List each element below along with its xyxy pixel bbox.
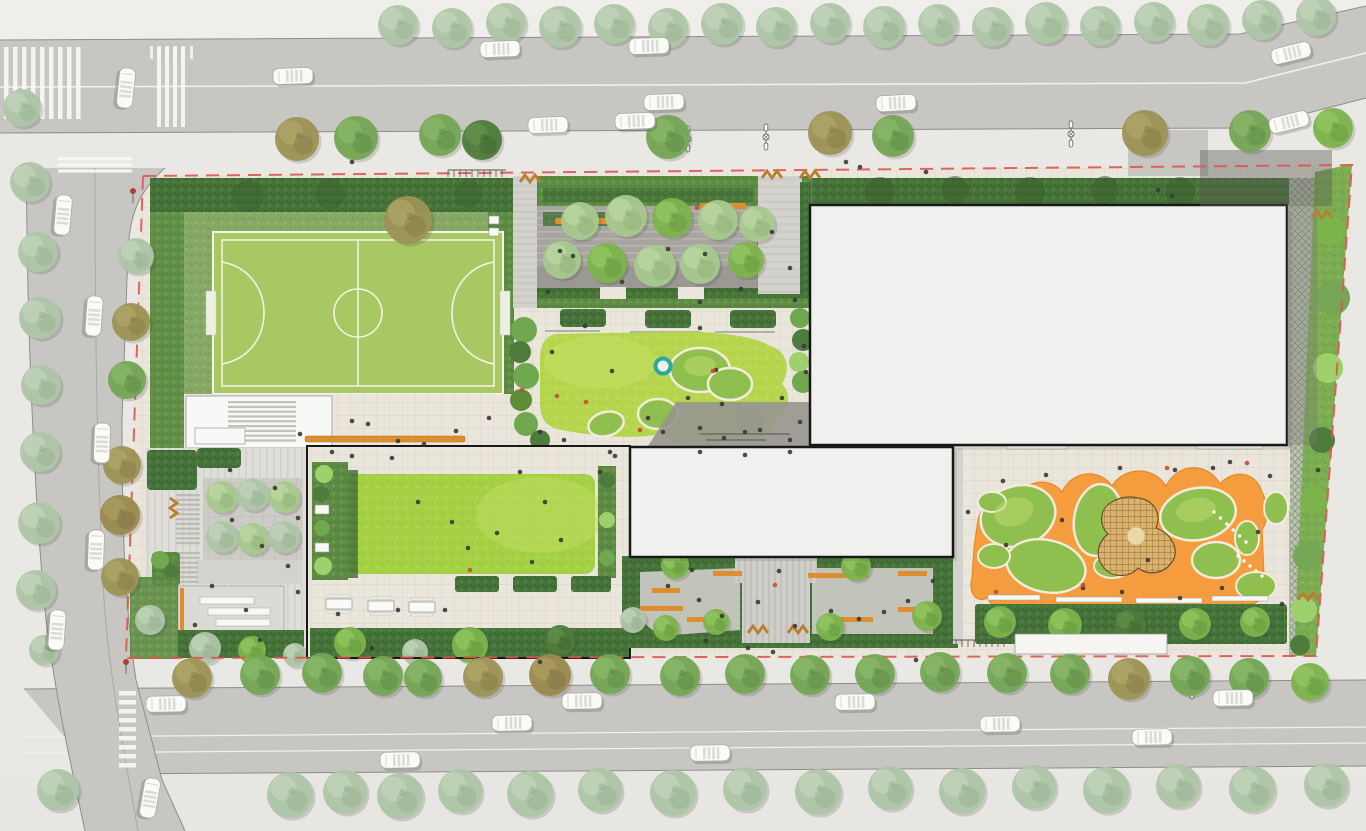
site-plan-canvas [0, 0, 1366, 831]
play-lawn-courtyard [509, 308, 814, 450]
person [661, 430, 666, 435]
person [1316, 468, 1321, 473]
person [1256, 530, 1261, 535]
person [550, 350, 555, 355]
person [1170, 194, 1175, 199]
person [366, 422, 371, 427]
person [773, 583, 778, 588]
car [146, 696, 188, 716]
person [1268, 474, 1273, 479]
person [330, 450, 335, 455]
person [454, 429, 459, 434]
car [615, 112, 658, 132]
person [1146, 558, 1151, 563]
person [538, 660, 543, 665]
person [558, 249, 563, 254]
person [487, 416, 492, 421]
person [690, 568, 695, 573]
car [44, 609, 66, 652]
person [296, 516, 301, 521]
person [613, 454, 618, 459]
person [466, 546, 471, 551]
person [844, 160, 849, 165]
person [244, 608, 249, 613]
person [697, 598, 702, 603]
person [686, 396, 691, 401]
person [530, 560, 535, 565]
person [416, 500, 421, 505]
person [739, 287, 744, 292]
person [559, 538, 564, 543]
person [924, 170, 929, 175]
person [711, 369, 716, 374]
person [1178, 596, 1183, 601]
person [703, 252, 708, 257]
lawn-courtyard [307, 446, 630, 668]
person [538, 430, 543, 435]
person [1220, 586, 1225, 591]
person [646, 416, 651, 421]
person [771, 650, 776, 655]
person [758, 428, 763, 433]
person [1120, 590, 1125, 595]
person [994, 590, 999, 595]
person [793, 624, 798, 629]
car [84, 530, 104, 573]
person [698, 326, 703, 331]
person [286, 564, 291, 569]
car [1132, 729, 1174, 749]
person [273, 486, 278, 491]
car [562, 693, 604, 713]
person [583, 324, 588, 329]
north-courtyard [513, 176, 812, 308]
person [1118, 466, 1123, 471]
person [931, 579, 936, 584]
person [858, 165, 863, 170]
person [1004, 543, 1009, 548]
person [193, 623, 198, 628]
person [608, 450, 613, 455]
person [695, 206, 700, 211]
person [1245, 461, 1250, 466]
person [396, 608, 401, 613]
person [518, 470, 523, 475]
person [780, 396, 785, 401]
person [450, 520, 455, 525]
person [468, 568, 473, 573]
person [598, 470, 603, 475]
person [1081, 583, 1086, 588]
person [298, 432, 303, 437]
person [210, 584, 215, 589]
person [422, 442, 427, 447]
person [882, 610, 887, 615]
site-plan-stage [0, 0, 1366, 831]
car [273, 67, 316, 87]
person [743, 430, 748, 435]
person [638, 428, 643, 433]
person [802, 344, 807, 349]
car [90, 423, 110, 466]
person [777, 569, 782, 574]
person [788, 450, 793, 455]
person [804, 370, 809, 375]
person [350, 419, 355, 424]
person [788, 438, 793, 443]
person [756, 600, 761, 605]
car [480, 40, 523, 60]
person [260, 544, 265, 549]
person [546, 290, 551, 295]
sports-field-zone [150, 178, 514, 455]
southwest-plaza [130, 448, 310, 670]
person [1044, 473, 1049, 478]
person [698, 300, 703, 305]
person [443, 608, 448, 613]
person [666, 247, 671, 252]
person [258, 638, 263, 643]
person [704, 639, 709, 644]
person [228, 468, 233, 473]
person [666, 584, 671, 589]
person [1165, 466, 1170, 471]
car [50, 194, 73, 237]
car [644, 93, 687, 113]
person [350, 454, 355, 459]
person [857, 617, 862, 622]
car [380, 752, 422, 772]
person [296, 590, 301, 595]
car [980, 716, 1022, 736]
adventure-playground [953, 444, 1290, 654]
person [1211, 466, 1216, 471]
car [629, 37, 672, 57]
car [1213, 690, 1255, 710]
car [81, 295, 103, 338]
person [743, 453, 748, 458]
person [396, 439, 401, 444]
person [370, 646, 375, 651]
car [492, 715, 534, 735]
person [1173, 468, 1178, 473]
person [584, 400, 589, 405]
person [620, 280, 625, 285]
person [543, 500, 548, 505]
person [722, 436, 727, 441]
car [876, 94, 919, 115]
car [528, 116, 571, 136]
car [690, 745, 732, 765]
person [495, 531, 500, 536]
person [1280, 602, 1285, 607]
person [914, 658, 919, 663]
person [610, 369, 615, 374]
person [1228, 460, 1233, 465]
person [746, 646, 751, 651]
person [555, 394, 560, 399]
person [390, 456, 395, 461]
person [562, 438, 567, 443]
person [1001, 479, 1006, 484]
person [1060, 518, 1065, 523]
person [571, 254, 576, 259]
person [230, 518, 235, 523]
person [350, 160, 355, 165]
car [835, 694, 877, 714]
person [698, 426, 703, 431]
street-lamp-icon [763, 124, 769, 150]
person [793, 298, 798, 303]
person [720, 614, 725, 619]
person [698, 450, 703, 455]
person [336, 612, 341, 617]
person [966, 510, 971, 515]
person [798, 420, 803, 425]
person [788, 266, 793, 271]
person [906, 599, 911, 604]
person [829, 609, 834, 614]
person [770, 230, 775, 235]
person [520, 388, 525, 393]
person [720, 402, 725, 407]
street-lamp-icon [1068, 121, 1074, 147]
person [1156, 188, 1161, 193]
